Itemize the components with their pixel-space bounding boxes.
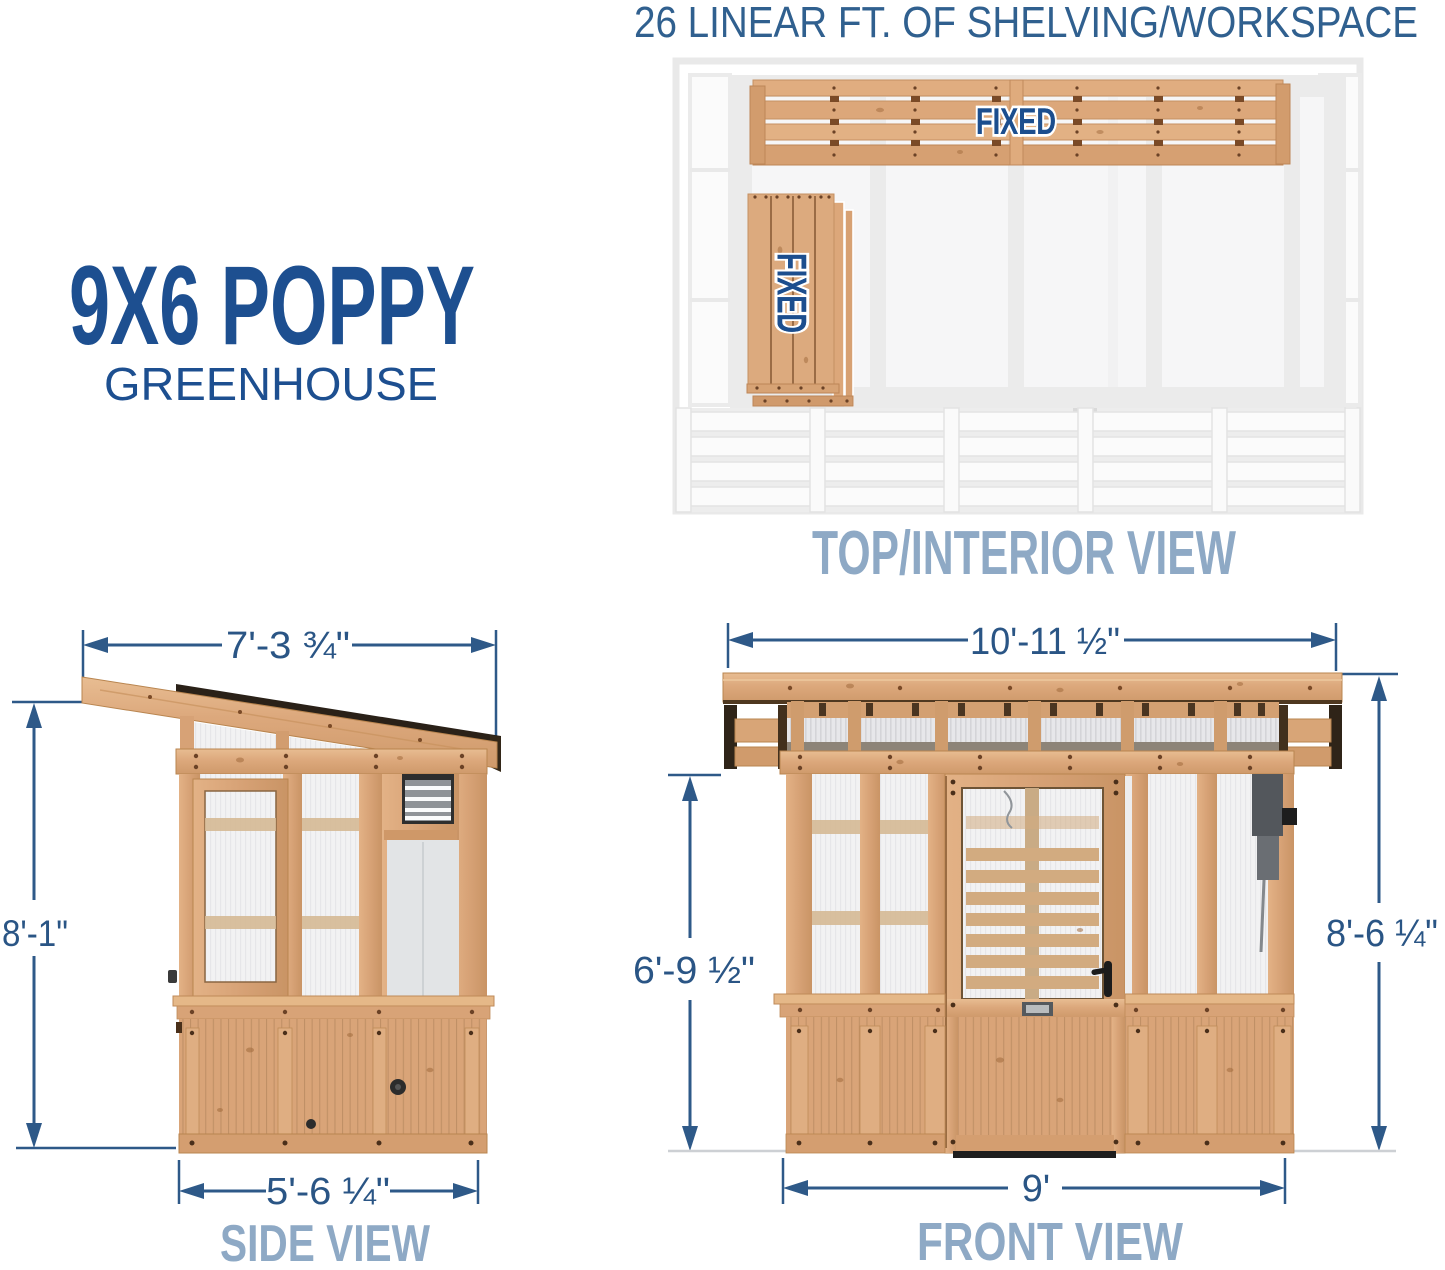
svg-text:26 LINEAR FT. OF SHELVING/WORK: 26 LINEAR FT. OF SHELVING/WORKSPACE (634, 0, 1418, 47)
svg-text:9X6 POPPY: 9X6 POPPY (69, 243, 475, 368)
svg-text:FIXED: FIXED (769, 253, 816, 333)
svg-text:5'-6 ¼": 5'-6 ¼" (266, 1171, 390, 1213)
svg-text:SIDE VIEW: SIDE VIEW (220, 1215, 431, 1270)
svg-text:FRONT VIEW: FRONT VIEW (917, 1212, 1183, 1270)
svg-text:7'-3 ¾": 7'-3 ¾" (226, 625, 350, 667)
svg-text:9': 9' (1022, 1168, 1050, 1210)
svg-text:TOP/INTERIOR VIEW: TOP/INTERIOR VIEW (812, 519, 1236, 588)
svg-text:10'-11 ½": 10'-11 ½" (970, 621, 1120, 663)
svg-text:8'-1": 8'-1" (2, 913, 68, 954)
svg-text:6'-9 ½": 6'-9 ½" (633, 950, 755, 992)
svg-text:GREENHOUSE: GREENHOUSE (104, 358, 438, 410)
svg-text:FIXED: FIXED (976, 101, 1056, 142)
svg-text:8'-6 ¼": 8'-6 ¼" (1326, 913, 1438, 955)
